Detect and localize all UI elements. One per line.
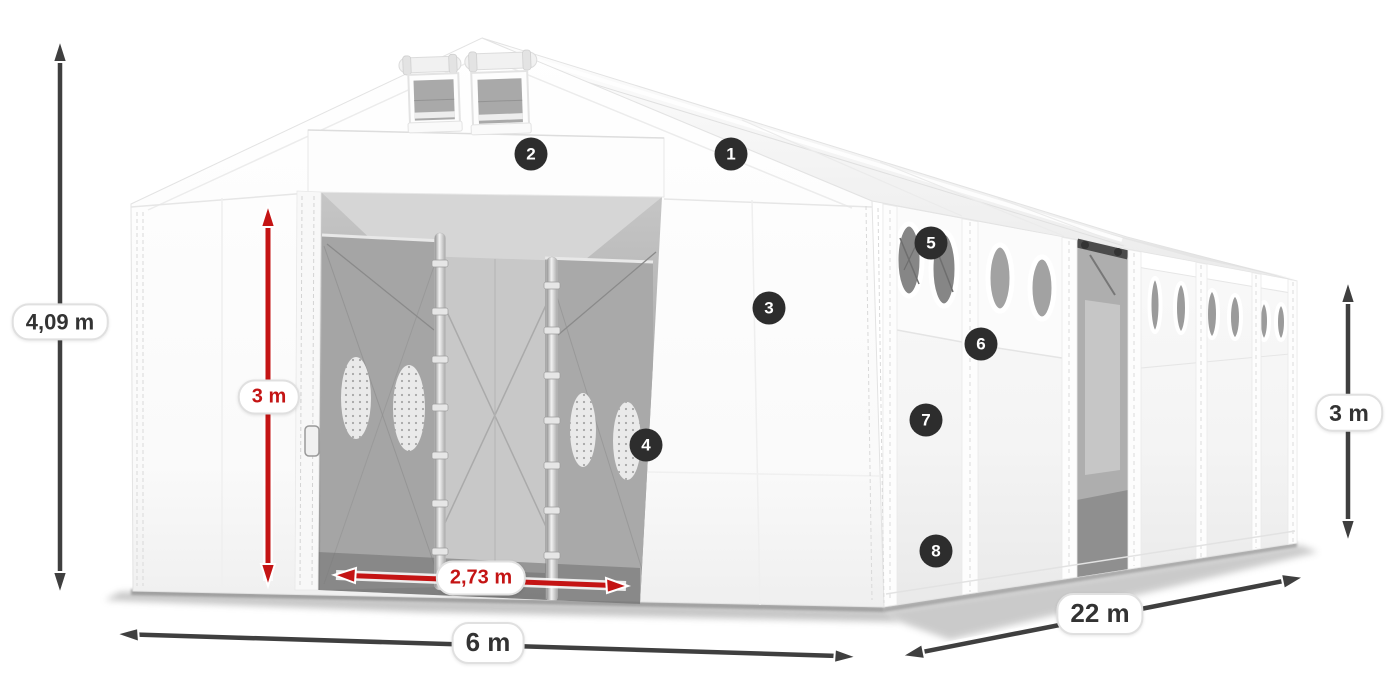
hotspot-2[interactable]: 2 [515, 138, 548, 171]
dimension-label-entrance-height: 3 m [238, 380, 300, 415]
hotspot-7[interactable]: 7 [910, 404, 943, 437]
side-open-section [1077, 240, 1128, 577]
entrance-interior [318, 192, 662, 604]
hotspot-5[interactable]: 5 [915, 227, 948, 260]
dimension-label-total-height: 4,09 m [12, 303, 109, 340]
dimension-label-front-width: 6 m [452, 622, 525, 664]
door-pole-left [432, 233, 448, 590]
hotspot-1[interactable]: 1 [715, 138, 748, 171]
dimension-label-side-length: 22 m [1056, 593, 1143, 635]
hotspot-8[interactable]: 8 [920, 535, 953, 568]
dimension-label-entrance-width: 2,73 m [436, 561, 526, 596]
hotspot-4[interactable]: 4 [630, 429, 663, 462]
tent-illustration [0, 0, 1400, 700]
tent-dimensions-diagram: 4,09 m 3 m 2,73 m 6 m 22 m 3 m 1 2 3 4 5… [0, 0, 1400, 700]
dimension-label-side-wall-height: 3 m [1315, 394, 1383, 432]
gable-vent-window-right [464, 50, 539, 135]
door-handle [305, 426, 319, 456]
door-pole-right [544, 257, 560, 602]
hotspot-6[interactable]: 6 [965, 328, 998, 361]
hotspot-3[interactable]: 3 [753, 292, 786, 325]
inner-door-right [545, 257, 653, 602]
entrance-header [308, 130, 664, 197]
